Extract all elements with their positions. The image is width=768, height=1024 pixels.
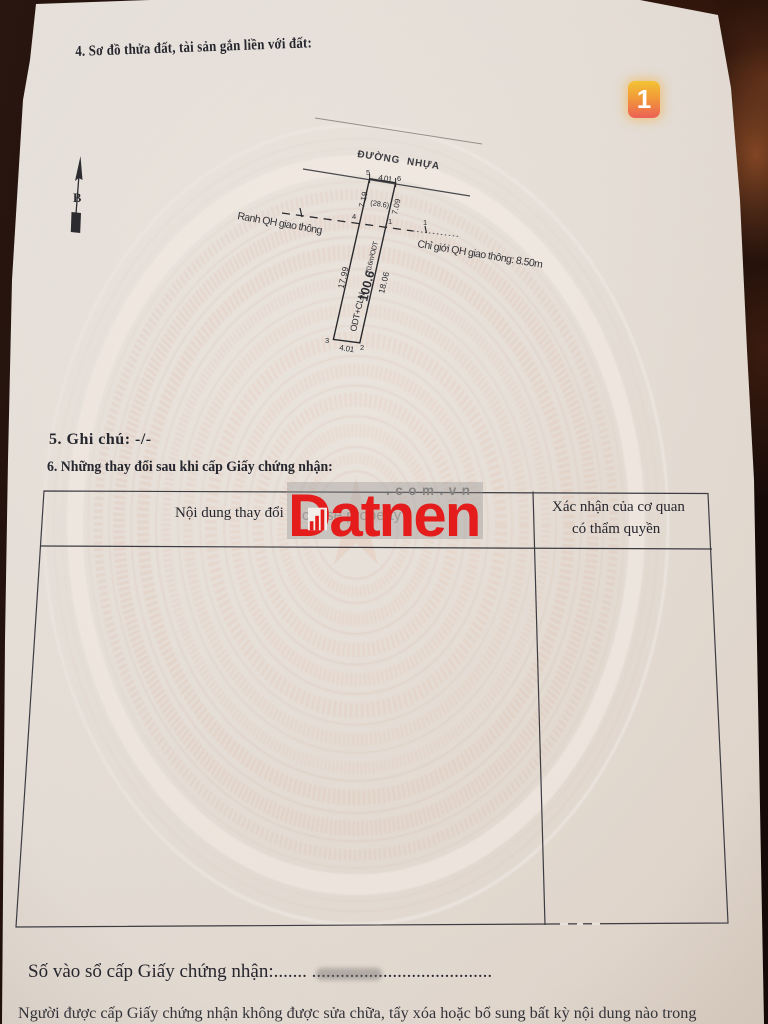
svg-text:2: 2 [360,343,364,352]
svg-text:1: 1 [388,217,392,226]
svg-text:3: 3 [325,336,329,345]
svg-text:B: B [73,191,81,205]
svg-text:5: 5 [366,168,370,177]
svg-text:1: 1 [423,218,427,227]
svg-text:4: 4 [352,212,356,221]
svg-text:6: 6 [397,174,401,183]
